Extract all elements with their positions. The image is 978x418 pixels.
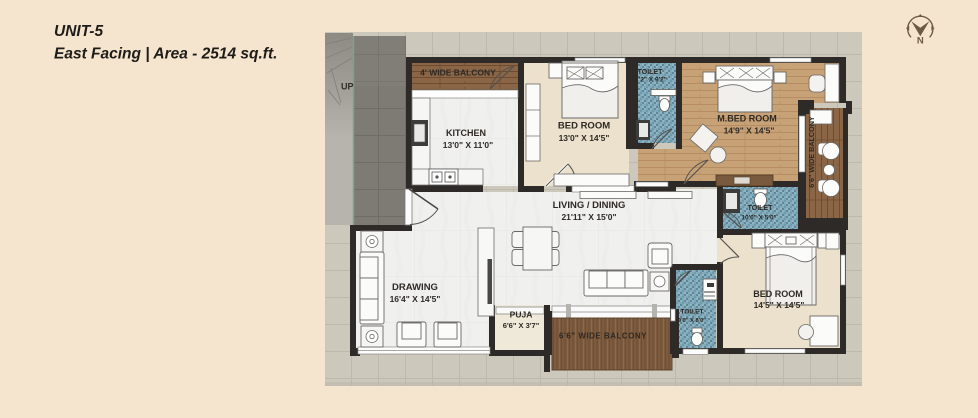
svg-text:13'0" X 11'0": 13'0" X 11'0" [443, 140, 493, 150]
svg-text:21'11" X 15'0": 21'11" X 15'0" [561, 212, 616, 222]
svg-text:UP: UP [341, 82, 354, 92]
svg-text:BED ROOM: BED ROOM [558, 121, 610, 132]
svg-text:M.BED ROOM: M.BED ROOM [717, 114, 777, 124]
svg-text:DRAWING: DRAWING [392, 282, 438, 293]
svg-text:PUJA: PUJA [510, 310, 533, 320]
svg-text:10'0" X 5'0": 10'0" X 5'0" [741, 215, 776, 222]
svg-text:6'6" WIDE BALCONY: 6'6" WIDE BALCONY [807, 116, 816, 188]
svg-text:9'0" X 8'0": 9'0" X 8'0" [678, 318, 706, 324]
svg-text:14'5" X 14'5": 14'5" X 14'5" [754, 300, 805, 310]
svg-text:UNIT-5: UNIT-5 [54, 23, 103, 40]
svg-text:6'6" X 3'7": 6'6" X 3'7" [503, 321, 540, 330]
svg-text:TOILET: TOILET [681, 309, 704, 316]
svg-text:6'6" WIDE BALCONY: 6'6" WIDE BALCONY [559, 332, 647, 341]
svg-text:TOILET: TOILET [638, 69, 663, 76]
svg-text:LIVING / DINING: LIVING / DINING [553, 200, 626, 211]
svg-text:13'0" X 14'5": 13'0" X 14'5" [559, 133, 610, 143]
svg-text:KITCHEN: KITCHEN [446, 128, 486, 138]
svg-text:TOILET: TOILET [748, 205, 773, 212]
svg-text:14'9" X 14'5": 14'9" X 14'5" [724, 126, 775, 136]
svg-text:7'2" X 9'2": 7'2" X 9'2" [635, 77, 667, 84]
svg-text:N: N [917, 36, 924, 47]
svg-text:16'4" X 14'5": 16'4" X 14'5" [390, 294, 441, 304]
svg-text:East Facing | Area - 2514 sq.f: East Facing | Area - 2514 sq.ft. [54, 46, 277, 63]
svg-text:4' WIDE BALCONY: 4' WIDE BALCONY [420, 68, 496, 78]
svg-text:BED ROOM: BED ROOM [753, 289, 803, 299]
